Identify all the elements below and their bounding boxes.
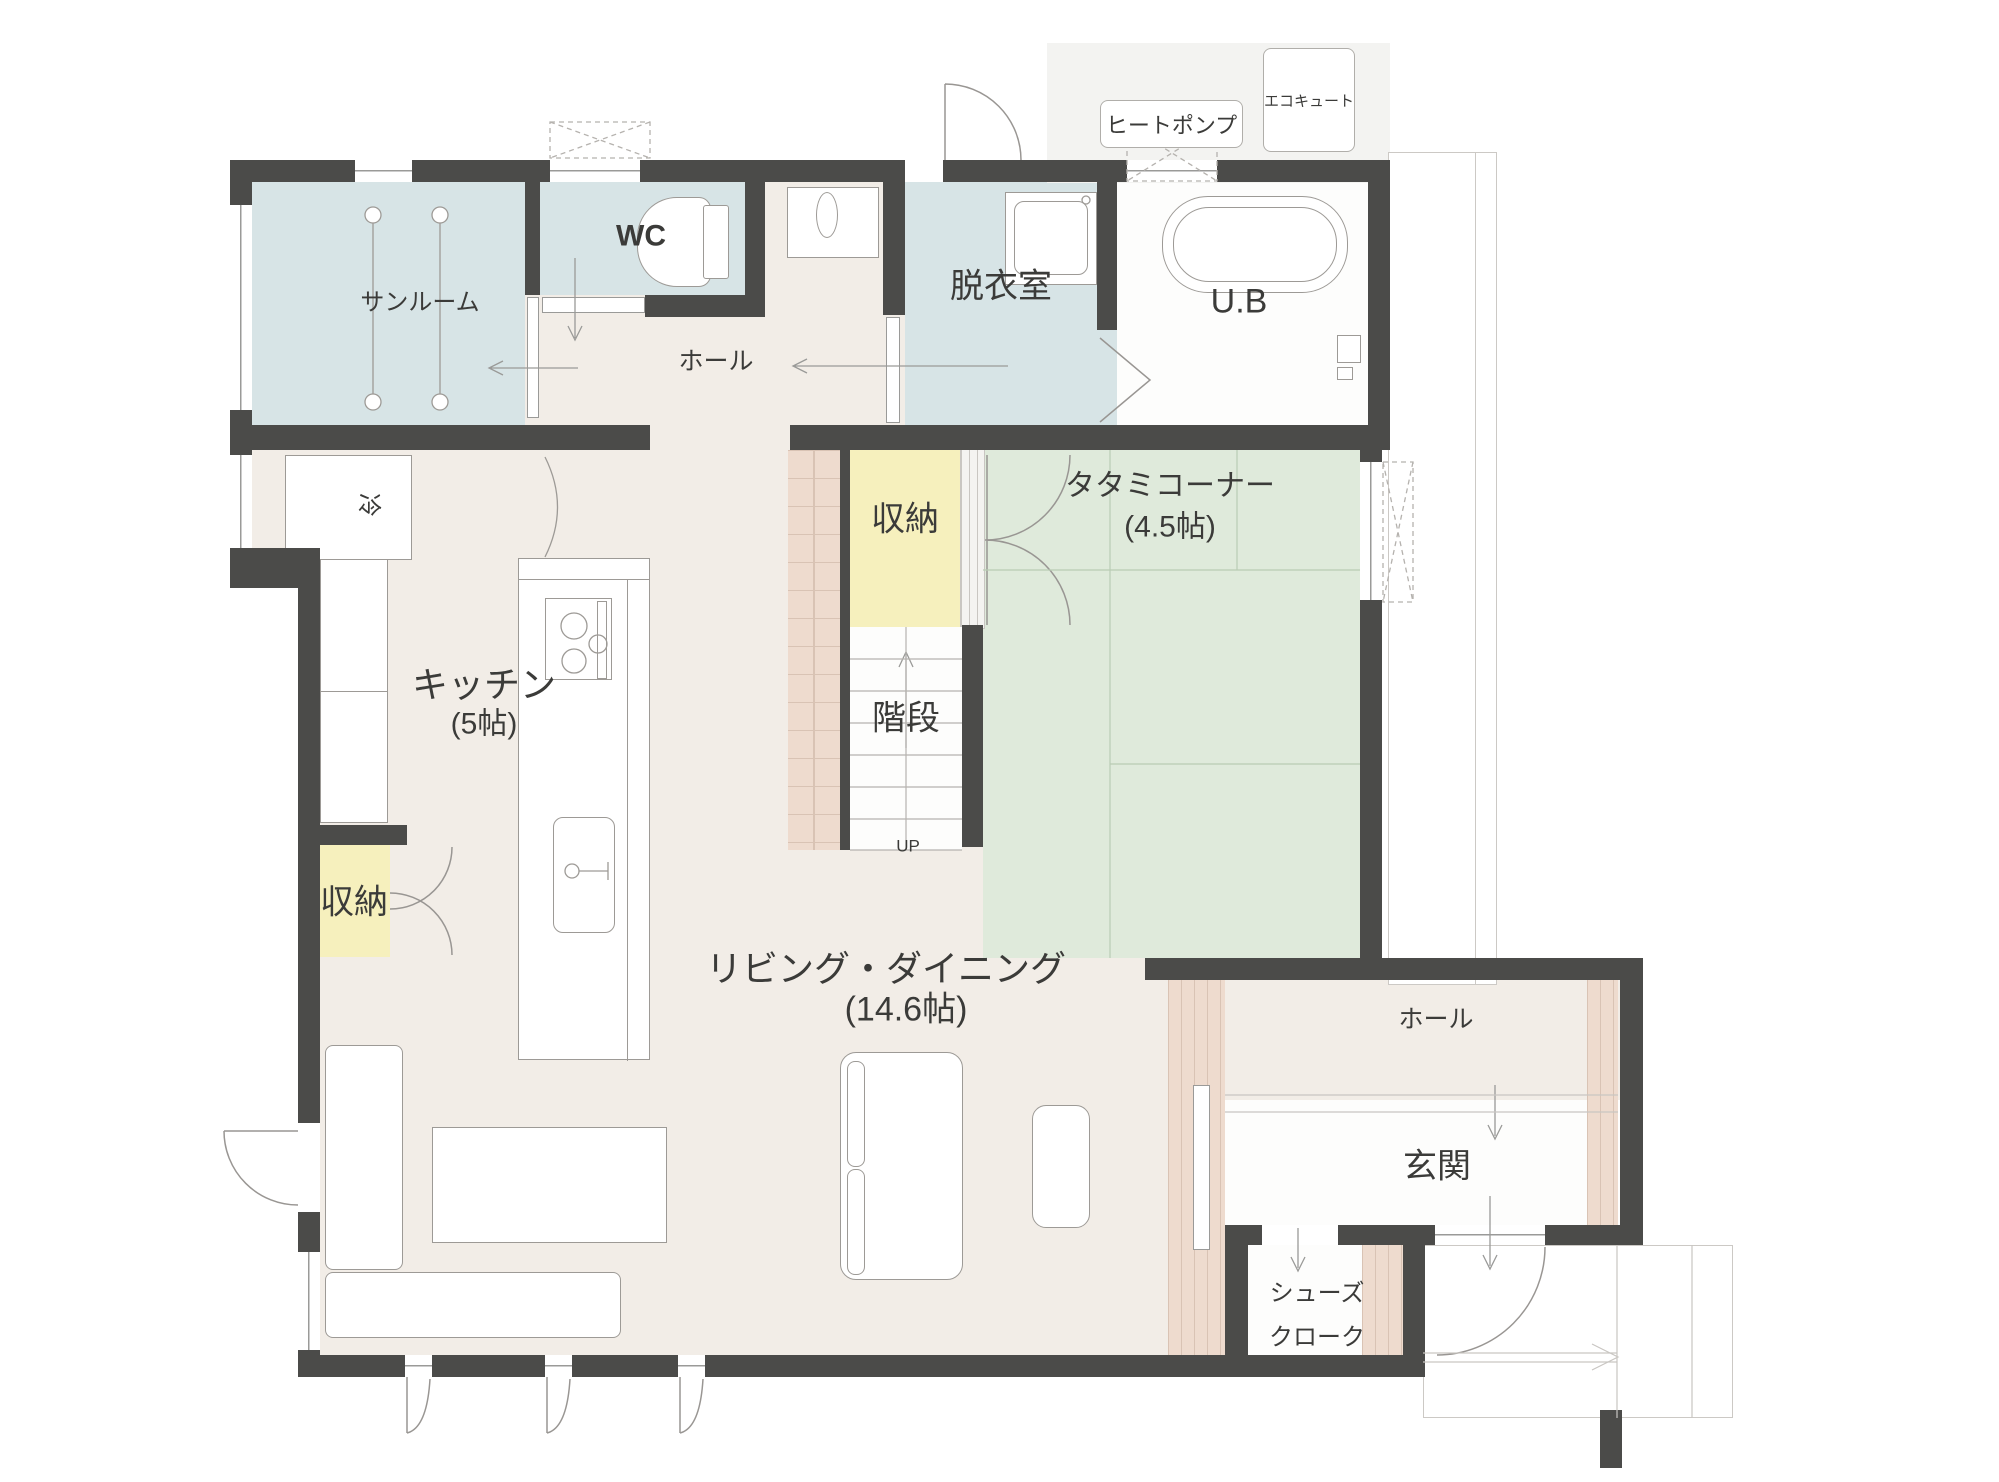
porch-pillar [1600,1410,1622,1468]
entrance-shoe-cabinet [1587,980,1618,1225]
stairs-up-label: UP [896,838,920,857]
wall [962,625,983,847]
storage-lower-label: 収納 [320,884,388,921]
sofa-cushion-bottom [847,1169,865,1275]
wall [1620,980,1643,1245]
wall [298,588,320,1123]
wall [572,1355,678,1377]
window [1127,160,1217,182]
window [550,160,640,182]
cupboard-divider [321,691,387,692]
tv-board [325,1045,403,1270]
wall [1360,600,1382,958]
kitchen-sink [553,817,615,933]
bathroom-label: U.B [1211,283,1268,320]
entrance-label: 玄関 [1403,1148,1471,1185]
kitchen-size-label: (5帖) [451,708,518,741]
wall [1368,160,1390,450]
casement-window [545,1355,572,1377]
wall [230,425,650,450]
floor-plan: ヒートポンプ エコキュート サンルーム WC ホール 脱衣室 U.B キッチン … [0,0,1999,1482]
wall [298,825,407,845]
wall [230,548,320,588]
wall [230,160,355,182]
tatami-size-label: (4.5帖) [1124,511,1216,544]
ecocute-unit: エコキュート [1263,48,1355,152]
refrigerator-nook [285,455,412,560]
entrance-porch [1423,1245,1733,1418]
wall [298,1355,405,1377]
window [230,455,252,548]
wall [1403,1245,1425,1377]
hall-top-label: ホール [678,348,753,376]
wc-label: WC [616,220,666,253]
shoe-closet-right-shelf [1362,1245,1403,1355]
storage-upper-label: 収納 [871,501,939,538]
sunroom-label: サンルーム [360,290,479,316]
storage-upper-sliding-door [960,445,985,629]
side-table [1032,1105,1090,1228]
bathtub-inner [1173,207,1337,282]
dressing-room-label: 脱衣室 [950,268,1052,305]
wall [1545,1225,1643,1245]
wall [432,1355,545,1377]
window [298,1252,320,1350]
counter-inner-line [627,579,628,1061]
wall [790,425,1390,450]
living-size-label: (14.6帖) [845,991,968,1028]
deck-inner-line [1475,153,1476,984]
window [1360,462,1382,600]
living-table [432,1127,667,1243]
heat-pump-unit: ヒートポンプ [1100,100,1243,148]
toilet-tank [703,205,729,279]
back-door-gap [905,160,943,182]
wall [1145,958,1643,980]
wall [1338,1225,1435,1245]
stairs-floor [850,627,962,850]
bath-faucet-box [1337,367,1353,380]
window [230,205,252,410]
sunroom-sliding-door [527,297,539,418]
entrance-hall-floor [1225,980,1620,1100]
front-door-gap [1435,1225,1545,1245]
wall [1225,1225,1262,1245]
wall [883,182,905,315]
wall [1360,450,1382,462]
wall [412,160,550,182]
wall [705,1355,1423,1377]
bath-control-panel [1337,335,1361,363]
counter-back-line [519,579,649,580]
wall [1217,160,1390,182]
ecocute-label: エコキュート [1264,90,1354,111]
dressing-sliding-door [886,317,900,423]
wall [840,445,850,850]
tatami-label: タタミコーナー [1065,470,1275,503]
wall [943,160,1127,182]
washbasin-bowl [816,192,838,238]
wall [525,182,540,295]
stair-side-shelf [788,450,840,850]
side-deck [1388,152,1497,985]
exterior-gap [230,588,298,1378]
sofa-main [840,1052,963,1280]
living-label: リビング・ダイニング [706,949,1066,989]
wall [1225,1245,1248,1355]
kitchen-label: キッチン [412,665,556,705]
window [355,160,412,182]
casement-window [678,1355,705,1377]
wall [298,1212,320,1252]
living-hall-sliding-door [1193,1085,1210,1250]
sofa-bottom [325,1272,621,1338]
hall-entrance-label: ホール [1398,1006,1473,1034]
wc-sliding-door [542,297,645,313]
stove-grill [597,601,607,679]
wall [1097,182,1117,330]
wall [640,160,905,182]
heat-pump-label: ヒートポンプ [1106,108,1237,140]
sofa-cushion-top [847,1061,865,1167]
washing-machine-drum [1014,201,1088,275]
wall [230,182,252,205]
bathtub [1162,196,1348,293]
stairs-label: 階段 [872,700,940,737]
casement-window [405,1355,432,1377]
shoe-closet-label-2: クローク [1269,1325,1365,1351]
fridge-label: 冷 [355,493,381,517]
cupboard [320,550,388,823]
side-door-gap [298,1123,320,1212]
shoe-closet-label-1: シューズ [1270,1281,1365,1307]
wall [645,295,765,317]
